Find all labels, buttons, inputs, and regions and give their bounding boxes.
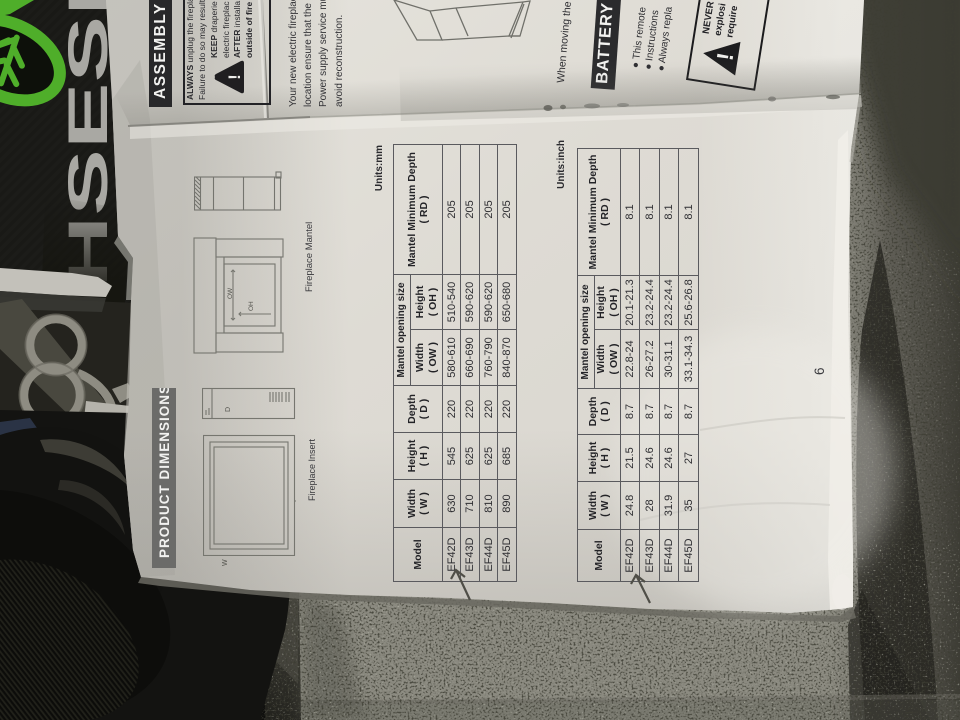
svg-text:OW: OW	[227, 287, 234, 299]
svg-text:OH: OH	[248, 301, 255, 311]
svg-text:D: D	[225, 407, 232, 412]
svg-text:!: !	[225, 74, 244, 80]
